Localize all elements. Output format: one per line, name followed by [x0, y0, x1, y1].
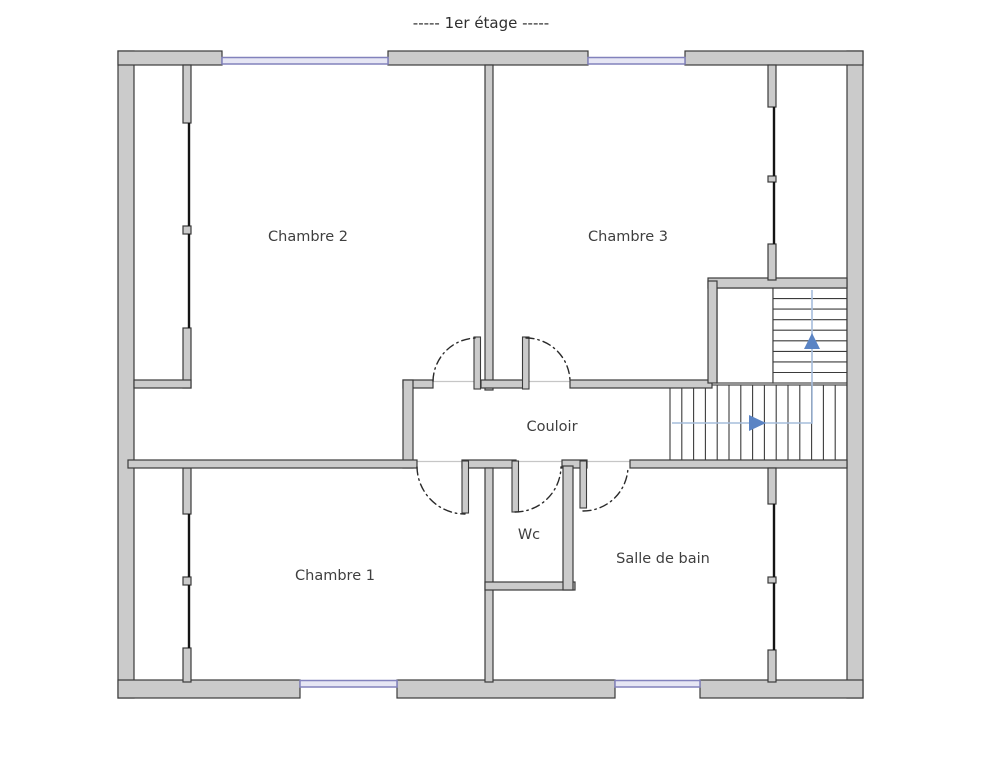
wall-exterior-bottom-right — [700, 680, 863, 698]
room-label-couloir: Couloir — [526, 419, 577, 435]
room-label-chambre2: Chambre 2 — [268, 229, 348, 245]
wall-closet-topleft-mid-stub — [183, 226, 191, 234]
closet-sliding-doors — [189, 107, 774, 650]
wall-exterior-bottom-left — [118, 680, 300, 698]
room-label-chambre1: Chambre 1 — [295, 568, 375, 584]
door-arc-chambre3 — [526, 338, 570, 381]
wall-closet-topleft-lower — [183, 328, 191, 388]
wall-exterior-top-middle — [388, 51, 588, 65]
wall-closet-bottomright-upper — [768, 468, 776, 504]
staircase — [670, 288, 847, 462]
window-chambre1 — [300, 681, 397, 688]
room-label-chambre3: Chambre 3 — [588, 229, 668, 245]
stair-upper-flight — [773, 288, 847, 383]
wall-exterior-right — [847, 51, 863, 698]
wall-wc-right — [563, 466, 573, 590]
window-chambre2 — [222, 58, 388, 65]
wall-divider-chambre2-chambre3 — [485, 65, 493, 390]
door-leaf-chambre1 — [462, 461, 469, 513]
floor-title: ----- 1er étage ----- — [413, 14, 549, 32]
wall-closet-bottomright-mid-stub — [768, 577, 776, 583]
wall-corridor-top-c — [570, 380, 712, 388]
wall-exterior-top-right — [685, 51, 863, 65]
window-chambre3 — [588, 58, 685, 65]
wall-exterior-left — [118, 51, 134, 698]
wall-chambre1-top — [128, 460, 417, 468]
wall-closet-topleft-upper — [183, 65, 191, 123]
door-leaf-chambre2 — [474, 337, 481, 389]
wall-stair-top — [708, 278, 847, 288]
wall-corridor-top-b — [481, 380, 524, 388]
wall-closet-bottomright-lower — [768, 650, 776, 682]
windows — [222, 58, 700, 688]
wall-corridor-left-end — [403, 380, 413, 468]
wall-closet-bottomleft-upper — [183, 468, 191, 514]
door-leaf-chambre3 — [523, 337, 530, 389]
wall-exterior-top-left — [118, 51, 222, 65]
floor-plan-canvas: ----- 1er étage ----- Chambre 2 Chambre … — [0, 0, 993, 765]
wall-closet-topleft-bottom — [134, 380, 191, 388]
door-arc-salle-de-bain — [583, 467, 628, 511]
door-leaf-wc — [512, 461, 519, 512]
wall-closet-topright-lower — [768, 244, 776, 280]
wall-closet-topright-mid-stub — [768, 176, 776, 182]
window-salle-de-bain — [615, 681, 700, 688]
wall-closet-bottomleft-mid-stub — [183, 577, 191, 585]
stair-landing — [717, 288, 773, 383]
door-arc-wc — [515, 467, 561, 512]
wall-divider-chambre1-sdb — [485, 468, 493, 682]
room-label-wc: Wc — [518, 527, 540, 543]
wall-wc-bottom — [485, 582, 575, 590]
door-arc-chambre1 — [417, 467, 465, 514]
door-arc-chambre2 — [433, 338, 477, 381]
wall-exterior-bottom-middle — [397, 680, 615, 698]
door-thresholds — [417, 382, 630, 462]
room-label-salle-de-bain: Salle de bain — [616, 551, 710, 567]
wall-under-stairs — [630, 460, 847, 468]
wall-closet-bottomleft-lower — [183, 648, 191, 682]
wall-closet-topright-upper — [768, 65, 776, 107]
wall-corridor-bottom-b — [462, 460, 516, 468]
floor-plan-page: ----- 1er étage ----- Chambre 2 Chambre … — [0, 0, 993, 765]
wall-stair-left — [708, 281, 717, 383]
door-leaf-salle-de-bain — [580, 461, 587, 508]
